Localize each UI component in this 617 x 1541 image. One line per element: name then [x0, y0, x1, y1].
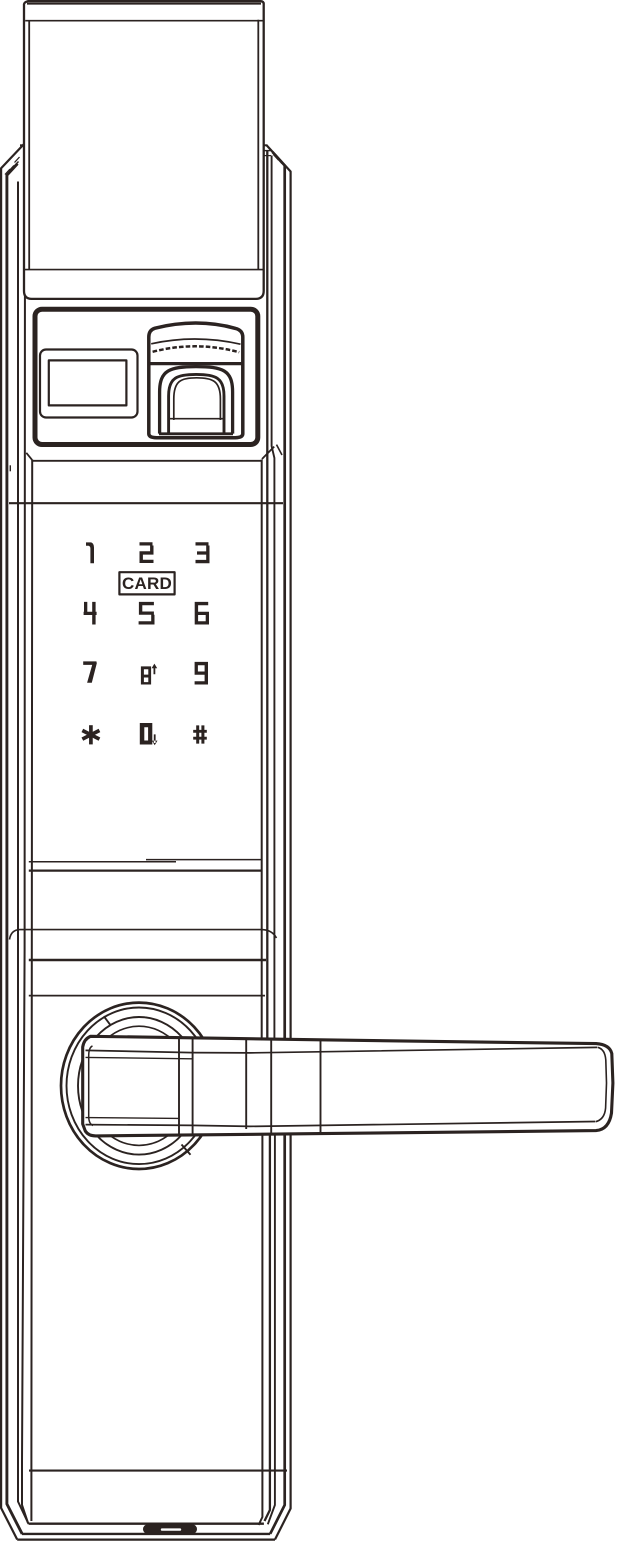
- svg-text:CARD: CARD: [122, 574, 172, 593]
